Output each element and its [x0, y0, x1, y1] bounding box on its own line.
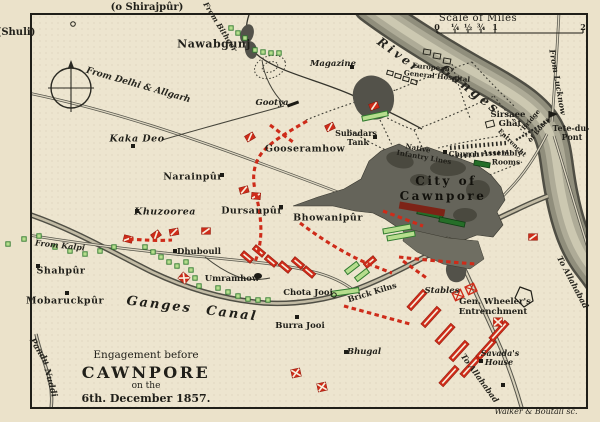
- map-title-name: CAWNPORE: [82, 363, 210, 382]
- scale-tick-¼: ¼: [451, 22, 459, 32]
- map-title-line1: Engagement before: [93, 349, 198, 361]
- static-text-layer: Scale of Miles 0¼½¾12 Engagement before …: [0, 0, 600, 422]
- scale-tick-¾: ¾: [477, 22, 485, 32]
- map-title-line3: on the: [132, 381, 161, 391]
- scale-tick-1: 1: [492, 22, 498, 32]
- scale-tick-½: ½: [464, 22, 472, 32]
- scale-tick-2: 2: [580, 22, 586, 32]
- scale-tick-0: 0: [434, 22, 440, 32]
- historic-map-page: { "map": { "title_block": { "line1": "En…: [0, 0, 600, 422]
- map-title-date: 6th. December 1857.: [81, 392, 210, 405]
